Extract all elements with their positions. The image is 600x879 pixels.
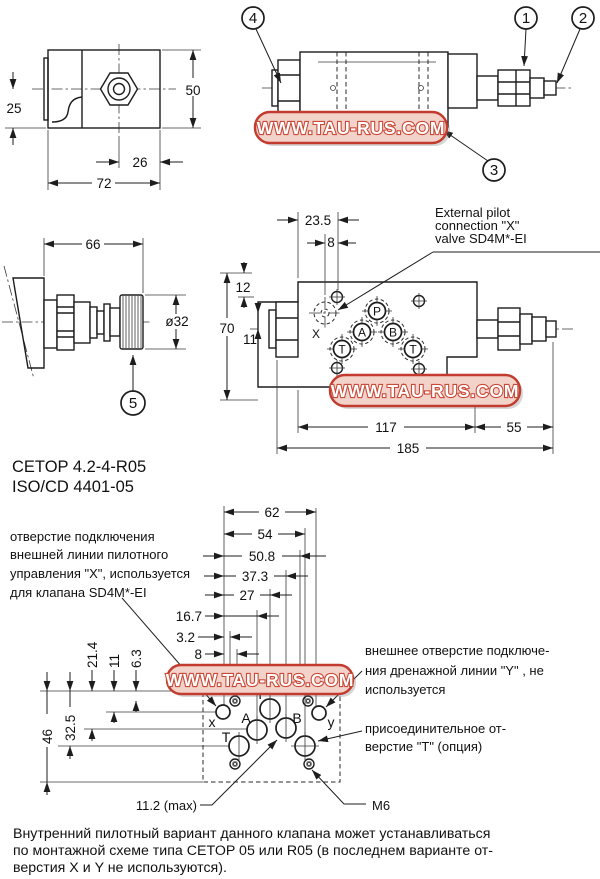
note-x-line-1: отверстие подключения xyxy=(10,529,155,544)
watermark-bottom: WWW.TAU-RUS.COM xyxy=(166,665,356,697)
port-label-a: A xyxy=(358,326,366,340)
callout-4: 4 xyxy=(249,10,257,27)
note-x-line-3: управления "X", используется xyxy=(10,566,190,581)
note-port-t: присоединительное от- верстие "T" (опция… xyxy=(365,721,506,754)
dim-label-27: 27 xyxy=(239,588,254,603)
pattern-label-y: y xyxy=(328,714,335,730)
watermark-text: WWW.TAU-RUS.COM xyxy=(257,118,446,138)
dim-label-185: 185 xyxy=(397,441,420,456)
note-y-line-3: используется xyxy=(365,682,445,697)
catalog-page: 50 25 26 72 xyxy=(0,0,600,879)
dim-label-55: 55 xyxy=(506,420,521,435)
note-y-line-2: ния дренажной линии "Y" , не xyxy=(365,663,544,678)
dim-label-p8: 8 xyxy=(194,647,202,662)
dim-label-50-8: 50.8 xyxy=(249,549,275,564)
dim-label-d32: ø32 xyxy=(165,314,188,329)
port-label-x: X xyxy=(312,327,320,341)
dim-label-62: 62 xyxy=(264,505,279,520)
top-view: X P A B T T 23.5 8 xyxy=(219,205,600,456)
standards-block: CETOP 4.2-4-R05 ISO/CD 4401-05 xyxy=(12,458,146,496)
note-drain-y: внешнее отверстие подключе- ния дренажно… xyxy=(365,643,549,697)
pattern-label-b: B xyxy=(292,710,301,726)
pattern-label-t: T xyxy=(222,729,231,745)
watermark-text: WWW.TAU-RUS.COM xyxy=(166,670,355,690)
note-pilot-x: отверстие подключения внешней линии пило… xyxy=(10,529,190,600)
note-t-line-2: верстие "T" (опция) xyxy=(365,739,482,754)
callout-5: 5 xyxy=(129,395,137,412)
footer-line-1: Внутренний пилотный вариант данного клап… xyxy=(13,826,490,842)
knob-view: 66 ø32 5 xyxy=(2,236,194,415)
pattern-label-x: x xyxy=(209,714,216,730)
watermark-middle: WWW.TAU-RUS.COM xyxy=(330,375,523,409)
port-label-t1: T xyxy=(338,343,346,357)
standard-cetop: CETOP 4.2-4-R05 xyxy=(12,458,146,476)
dim-label-54: 54 xyxy=(257,527,273,542)
port-label-b: B xyxy=(389,326,397,340)
dim-label-3-2: 3.2 xyxy=(176,630,195,645)
dim-label-23-5: 23.5 xyxy=(305,213,331,228)
footer-note: Внутренний пилотный вариант данного клап… xyxy=(13,826,493,876)
watermark-top: WWW.TAU-RUS.COM xyxy=(255,112,450,146)
dim-label-6-3: 6.3 xyxy=(129,649,144,668)
dim-label-11: 11 xyxy=(243,332,257,347)
dim-label-21-4: 21.4 xyxy=(85,641,100,668)
callout-1: 1 xyxy=(522,10,530,27)
note-x-line-2: внешней линии пилотного xyxy=(10,547,168,562)
label-m6: M6 xyxy=(372,798,390,813)
pattern-label-a: A xyxy=(241,710,251,726)
dim-label-16-7: 16.7 xyxy=(176,609,202,624)
dim-label-46: 46 xyxy=(40,729,55,744)
dim-label-72: 72 xyxy=(96,176,111,191)
callout-2: 2 xyxy=(579,10,587,27)
technical-drawing: 50 25 26 72 xyxy=(0,0,600,879)
label-11-2-max: 11.2 (max) xyxy=(136,798,197,813)
dim-label-66: 66 xyxy=(85,237,100,252)
callout-3: 3 xyxy=(490,162,498,179)
footer-line-3: верстия X и Y не используются). xyxy=(13,860,227,876)
note-y-line-1: внешнее отверстие подключе- xyxy=(365,643,549,658)
dim-label-v11: 11 xyxy=(107,654,122,668)
dim-label-117: 117 xyxy=(375,420,397,435)
watermark-text: WWW.TAU-RUS.COM xyxy=(331,381,520,401)
dim-label-12: 12 xyxy=(235,280,250,295)
dim-label-32-5: 32.5 xyxy=(63,715,78,741)
note-t-line-1: присоединительное от- xyxy=(365,721,506,736)
dim-label-50: 50 xyxy=(185,83,200,98)
annotation-line-3: valve SD4M*-EI xyxy=(435,231,527,246)
port-label-t2: T xyxy=(409,343,417,357)
dim-label-25: 25 xyxy=(6,101,21,116)
side-view: 4 1 2 3 xyxy=(242,7,594,181)
front-view: 50 25 26 72 xyxy=(5,44,203,191)
dim-label-t8: 8 xyxy=(327,235,335,250)
dim-label-70: 70 xyxy=(219,321,234,336)
note-x-line-4: для клапана SD4M*-EI xyxy=(10,585,147,600)
port-label-p: P xyxy=(373,305,381,319)
dim-label-26: 26 xyxy=(132,155,147,170)
footer-line-2: по монтажной схеме типа CETOP 05 или R05… xyxy=(13,843,493,859)
dim-label-37-3: 37.3 xyxy=(242,569,268,584)
standard-iso: ISO/CD 4401-05 xyxy=(12,478,134,496)
